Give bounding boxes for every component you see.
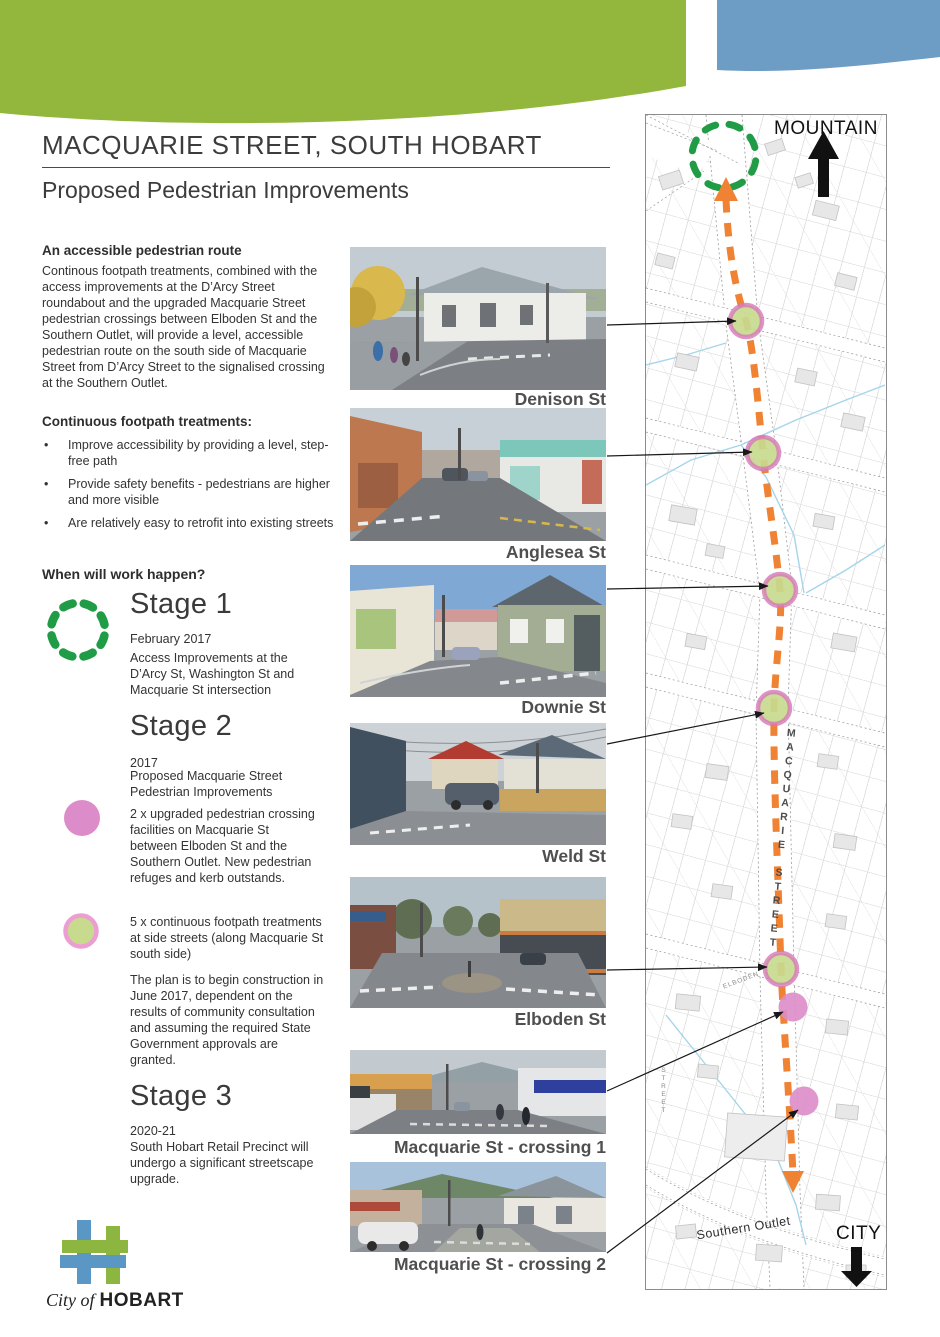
- stage2-name: Stage 2: [130, 710, 232, 743]
- photo-weld-st: [350, 723, 606, 845]
- treatments-heading: Continuous footpath treatments:: [42, 414, 334, 429]
- photo-label-weld: Weld St: [350, 846, 606, 867]
- title-divider: [42, 167, 610, 168]
- photo-macquarie-crossing-1: [350, 1050, 606, 1134]
- photo-label-denison: Denison St: [350, 389, 606, 410]
- logo-city-of: City of: [46, 1290, 95, 1310]
- hobart-logo-mark: [46, 1218, 146, 1288]
- treatments-bullet-list: Improve accessibility by providing a lev…: [42, 437, 334, 538]
- city-of-hobart-logo: [46, 1218, 146, 1293]
- stage1-description: Access Improvements at the D’Arcy St, Wa…: [130, 650, 310, 698]
- stage2-note: The plan is to begin construction in Jun…: [130, 972, 325, 1068]
- logo-wordmark: City ofHOBART: [46, 1290, 184, 1312]
- photo-label-downie: Downie St: [350, 697, 606, 718]
- stage2-footpath-item: 5 x continuous footpath treatments at si…: [130, 914, 325, 962]
- photo-anglesea-st: [350, 408, 606, 541]
- stage3-name: Stage 3: [130, 1080, 232, 1113]
- photo-downie-st: [350, 565, 606, 697]
- flyer-page: MACQUARIE STREET, SOUTH HOBART Proposed …: [0, 0, 940, 1337]
- stage1-name: Stage 1: [130, 588, 232, 621]
- header-wave-graphic: [0, 0, 940, 132]
- treatments-bullet: Are relatively easy to retrofit into exi…: [42, 515, 334, 531]
- mountain-arrow-icon: [808, 131, 839, 197]
- treatments-bullet: Provide safety benefits - pedestrians ar…: [42, 476, 334, 508]
- page-subtitle: Proposed Pedestrian Improvements: [42, 177, 622, 204]
- photo-label-elboden: Elboden St: [350, 1009, 606, 1030]
- logo-hobart: HOBART: [100, 1290, 184, 1311]
- photo-denison-st: [350, 247, 606, 390]
- page-title: MACQUARIE STREET, SOUTH HOBART: [42, 130, 622, 161]
- photo-elboden-st: [350, 877, 606, 1008]
- header-wave-blue: [717, 0, 940, 71]
- stage2-crossings-item: 2 x upgraded pedestrian crossing facilit…: [130, 806, 315, 886]
- photo-macquarie-crossing-2: [350, 1162, 606, 1252]
- photo-label-crossing-1: Macquarie St - crossing 1: [350, 1137, 606, 1158]
- stage3-date: 2020-21: [130, 1124, 176, 1138]
- intro-heading: An accessible pedestrian route: [42, 243, 334, 258]
- locality-map: MOUNTAIN CITY MACQUARIE STREET Southern …: [645, 114, 887, 1290]
- map-artwork: [646, 115, 885, 1288]
- side-street-label: STREET: [660, 1067, 667, 1115]
- stage1-dashed-circle-icon: [44, 596, 112, 664]
- stage1-date: February 2017: [130, 632, 211, 646]
- schedule-heading: When will work happen?: [42, 566, 205, 582]
- mountain-label: MOUNTAIN: [774, 118, 878, 140]
- city-label: CITY: [836, 1223, 881, 1245]
- intro-body: Continous footpath treatments, combined …: [42, 263, 334, 391]
- stage3-description: South Hobart Retail Precinct will underg…: [130, 1139, 315, 1187]
- header-wave-green: [0, 0, 686, 123]
- footpath-treatment-marker-icon: [62, 912, 100, 950]
- crossing-marker-icon: [62, 798, 102, 838]
- stage2-intro: Proposed Macquarie Street Pedestrian Imp…: [130, 768, 315, 800]
- treatments-bullet: Improve accessibility by providing a lev…: [42, 437, 334, 469]
- photo-label-anglesea: Anglesea St: [350, 542, 606, 563]
- photo-label-crossing-2: Macquarie St - crossing 2: [350, 1254, 606, 1275]
